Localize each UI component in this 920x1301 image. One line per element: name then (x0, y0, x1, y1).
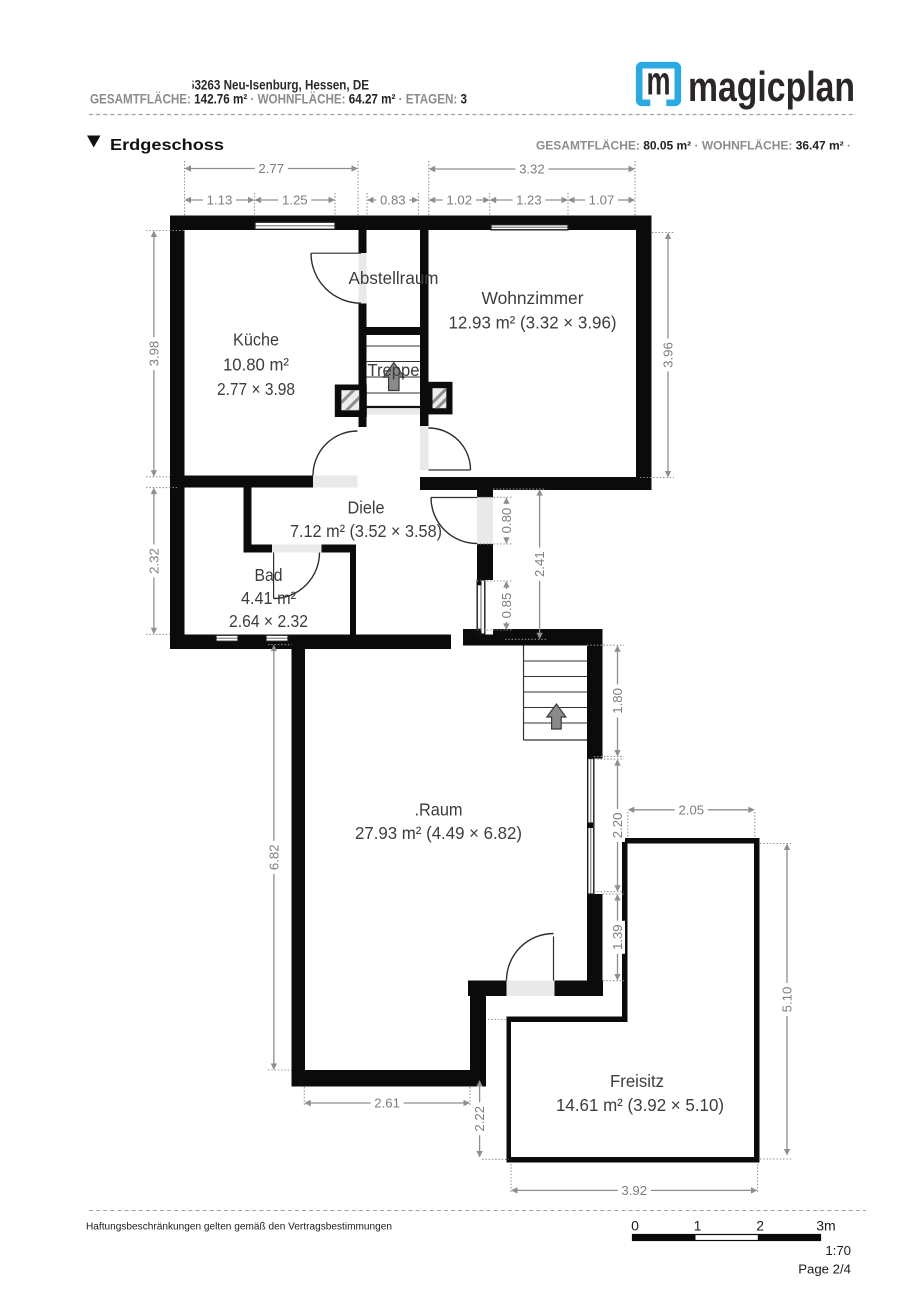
svg-text:2.05: 2.05 (678, 802, 704, 817)
svg-text:2.20: 2.20 (610, 813, 625, 839)
svg-text:7.12 m² (3.52 × 3.58): 7.12 m² (3.52 × 3.58) (290, 521, 442, 541)
svg-text:0.85: 0.85 (499, 593, 514, 619)
svg-text:Wohnzimmer: Wohnzimmer (482, 288, 584, 308)
svg-text:3.98: 3.98 (147, 341, 162, 367)
svg-text:Abstellraum: Abstellraum (349, 268, 439, 288)
svg-text:6.82: 6.82 (267, 844, 282, 870)
svg-text:Treppe: Treppe (368, 360, 420, 380)
svg-text:1.13: 1.13 (207, 193, 233, 208)
svg-text:Haftungsbeschränkungen gelten: Haftungsbeschränkungen gelten gemäß den … (86, 1222, 392, 1233)
svg-text:magicplan: magicplan (688, 63, 855, 110)
svg-text:0.83: 0.83 (380, 193, 406, 208)
svg-text:Page 2/4: Page 2/4 (798, 1262, 851, 1277)
svg-text:2.32: 2.32 (147, 548, 162, 574)
svg-text:0: 0 (631, 1218, 639, 1234)
svg-text:1:70: 1:70 (825, 1243, 851, 1258)
svg-text:2.77: 2.77 (258, 161, 284, 176)
svg-text:1.39: 1.39 (610, 924, 625, 950)
svg-text:Erdgeschoss: Erdgeschoss (110, 137, 224, 154)
svg-text:1.02: 1.02 (446, 193, 472, 208)
svg-text:14.61 m² (3.92 × 5.10): 14.61 m² (3.92 × 5.10) (556, 1095, 724, 1115)
svg-text:Küche: Küche (233, 330, 279, 350)
svg-text:1.80: 1.80 (610, 688, 625, 714)
svg-text:2.41: 2.41 (532, 551, 547, 577)
svg-text:Diele: Diele (348, 498, 385, 518)
svg-text:Bad: Bad (255, 565, 283, 585)
svg-text:GESAMTFLÄCHE: 142.76 m² · WOHN: GESAMTFLÄCHE: 142.76 m² · WOHNFLÄCHE: 64… (90, 92, 467, 107)
svg-text:3m: 3m (816, 1218, 835, 1234)
svg-text:1.07: 1.07 (589, 193, 615, 208)
svg-text:3.32: 3.32 (519, 162, 545, 177)
svg-text:5.10: 5.10 (780, 987, 795, 1013)
svg-text:1: 1 (694, 1218, 702, 1234)
svg-text:3.92: 3.92 (621, 1183, 647, 1198)
svg-text:1.23: 1.23 (516, 193, 542, 208)
svg-text:2.61: 2.61 (374, 1096, 400, 1111)
svg-text:Freisitz: Freisitz (610, 1071, 664, 1091)
svg-text:0.80: 0.80 (499, 508, 514, 534)
svg-text:4.41 m²: 4.41 m² (241, 588, 296, 608)
svg-text:.Raum: .Raum (415, 800, 463, 820)
svg-text:m: m (647, 60, 671, 104)
svg-text:3.96: 3.96 (661, 342, 676, 368)
svg-text:2.22: 2.22 (472, 1106, 487, 1132)
svg-text:2.64 × 2.32: 2.64 × 2.32 (229, 611, 308, 631)
svg-text:GESAMTFLÄCHE: 80.05 m² · WOHNF: GESAMTFLÄCHE: 80.05 m² · WOHNFLÄCHE: 36.… (536, 140, 851, 153)
svg-text:12.93 m² (3.32 × 3.96): 12.93 m² (3.32 × 3.96) (449, 313, 617, 333)
svg-text:1.25: 1.25 (282, 193, 308, 208)
svg-text:2: 2 (756, 1218, 764, 1234)
svg-text:27.93 m² (4.49 × 6.82): 27.93 m² (4.49 × 6.82) (355, 823, 522, 843)
svg-text:10.80 m²: 10.80 m² (223, 355, 289, 375)
svg-text:2.77 × 3.98: 2.77 × 3.98 (217, 379, 295, 399)
